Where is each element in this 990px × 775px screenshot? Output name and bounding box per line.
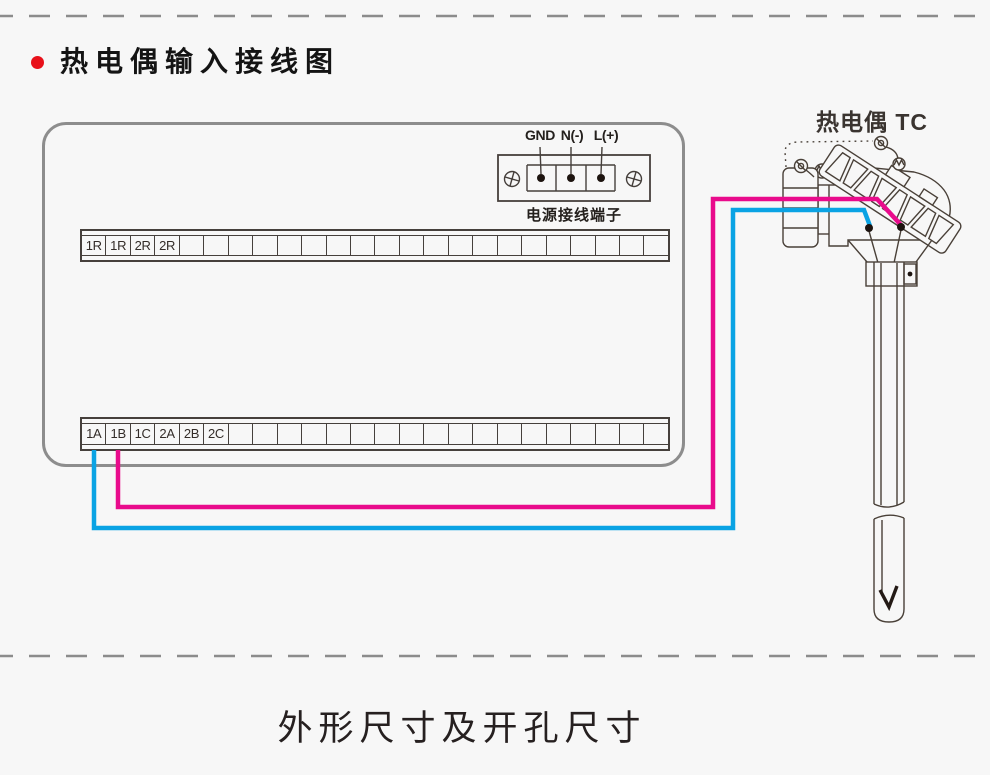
- terminal-strip-bottom: 1A1B1C2A2B2C: [80, 417, 670, 451]
- terminal-cell: [571, 236, 595, 255]
- footer-title: 外形尺寸及开孔尺寸: [277, 700, 646, 751]
- leader-line-gnd: [540, 147, 541, 174]
- power-block-caption: 电源接线端子: [526, 204, 622, 225]
- page-title: 热电偶输入接线图: [60, 46, 340, 78]
- terminal-cell: [620, 424, 644, 444]
- screw-icon: [627, 172, 642, 187]
- funnel-edge: [916, 240, 932, 262]
- thermocouple-gland: [783, 168, 818, 247]
- power-terminal-dots: [537, 174, 605, 182]
- thermocouple-drawing: [783, 134, 969, 622]
- terminal-cell: 1B: [106, 424, 130, 444]
- terminal-cell: [375, 424, 399, 444]
- terminal-cell: [596, 236, 620, 255]
- cap-screw-lever: [886, 147, 898, 159]
- cap-bracket: [886, 165, 910, 186]
- terminal-cell: 2R: [131, 236, 155, 255]
- terminal-cell: 1C: [131, 424, 155, 444]
- strip-cells: 1A1B1C2A2B2C: [82, 424, 668, 444]
- cap-swing-dotted-path: [785, 141, 873, 167]
- terminal-cell: [596, 424, 620, 444]
- terminal-cell: 1A: [82, 424, 106, 444]
- eye-screw-link: [806, 170, 814, 177]
- terminal-cell: 1R: [82, 236, 106, 255]
- terminal-cell: [571, 424, 595, 444]
- terminal-cell: [547, 236, 571, 255]
- probe-junction-v: [880, 586, 897, 607]
- terminal-cell: 1R: [106, 236, 130, 255]
- wing-screw-icon: [815, 164, 829, 178]
- probe-tube-upper: [874, 262, 904, 507]
- terminal-cell: [473, 236, 497, 255]
- terminal-cell: [522, 424, 546, 444]
- terminal-cell: [253, 424, 277, 444]
- terminal-cell: [449, 424, 473, 444]
- power-label-neutral: N(-): [561, 128, 584, 142]
- eye-screw-icon: [795, 160, 808, 173]
- strip-cells: 1R1R2R2R: [82, 236, 668, 255]
- funnel-edge: [848, 240, 867, 262]
- terminal-cell: [424, 236, 448, 255]
- terminal-cell: [498, 424, 522, 444]
- terminal-cell: [498, 236, 522, 255]
- tc-terminal-dot-positive: [897, 223, 905, 231]
- terminal-cell: [644, 236, 667, 255]
- power-label-live: L(+): [594, 128, 618, 142]
- cap-bracket: [919, 189, 937, 205]
- terminal-cell: [229, 424, 253, 444]
- terminal-strip-top: 1R1R2R2R: [80, 229, 670, 262]
- terminal-cell: [547, 424, 571, 444]
- bullet-icon: [31, 56, 44, 69]
- cap-screw-icon: [875, 137, 888, 150]
- terminal-cell: [424, 424, 448, 444]
- head-tab: [813, 176, 842, 185]
- thermocouple-cap: [817, 134, 968, 255]
- probe-tube-lower: [874, 515, 904, 622]
- terminal-cell: 2B: [180, 424, 204, 444]
- thermocouple-neck: [818, 182, 830, 234]
- terminal-cell: [449, 236, 473, 255]
- terminal-cell: 2R: [155, 236, 179, 255]
- page: 热电偶输入接线图: [0, 0, 990, 775]
- terminal-cell: [229, 236, 253, 255]
- internal-conductor: [869, 231, 878, 263]
- power-label-gnd: GND: [525, 128, 555, 142]
- terminal-cell: [400, 236, 424, 255]
- cap-knurl-segments: [826, 151, 954, 246]
- terminal-cell: [302, 236, 326, 255]
- terminal-cell: [620, 236, 644, 255]
- terminal-cell: [400, 424, 424, 444]
- terminal-cell: [302, 424, 326, 444]
- terminal-cell: [327, 424, 351, 444]
- terminal-cell: [327, 236, 351, 255]
- terminal-cell: [351, 236, 375, 255]
- terminal-cell: [253, 236, 277, 255]
- terminal-cell: [180, 236, 204, 255]
- terminal-cell: [204, 236, 228, 255]
- thermocouple-head-body: [829, 166, 950, 246]
- thermocouple-label: 热电偶 TC: [816, 103, 928, 137]
- terminal-cell: [278, 236, 302, 255]
- wing-bolt-icon: [893, 158, 905, 170]
- terminal-cell: 2C: [204, 424, 228, 444]
- terminal-cell: [522, 236, 546, 255]
- probe-collar: [866, 262, 917, 286]
- terminal-cell: [473, 424, 497, 444]
- leader-line-l: [601, 147, 602, 174]
- tc-terminal-dot-negative: [865, 224, 873, 232]
- terminal-cell: [375, 236, 399, 255]
- terminal-cell: [644, 424, 667, 444]
- internal-conductor: [894, 230, 901, 263]
- strip-rail: [82, 444, 668, 449]
- terminal-cell: [278, 424, 302, 444]
- strip-rail: [82, 255, 668, 260]
- terminal-cell: 2A: [155, 424, 179, 444]
- screw-icon: [505, 172, 520, 187]
- terminal-cell: [351, 424, 375, 444]
